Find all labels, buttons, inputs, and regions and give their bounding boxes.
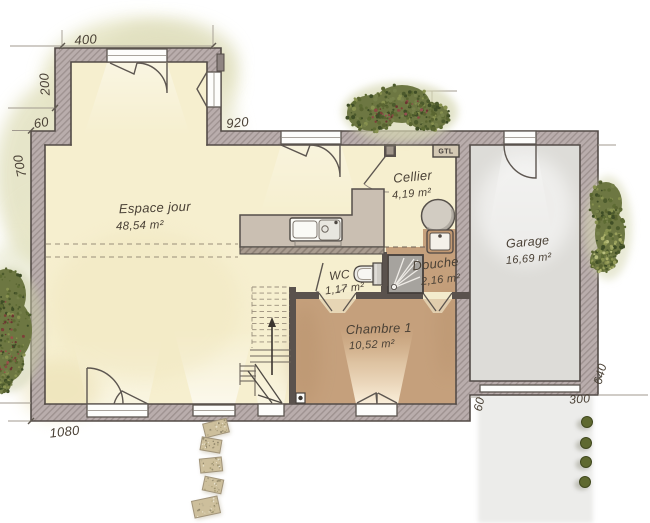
svg-text:920: 920 [226,114,251,131]
svg-text:Espace jour: Espace jour [119,199,192,217]
svg-text:48,54 m²: 48,54 m² [116,219,165,233]
svg-text:GTL: GTL [438,149,454,156]
svg-text:300: 300 [569,391,591,406]
svg-text:60: 60 [471,396,488,413]
svg-text:200: 200 [36,72,53,97]
svg-text:1080: 1080 [49,422,81,440]
svg-text:10,52 m²: 10,52 m² [349,338,395,352]
svg-text:WC: WC [328,267,350,283]
svg-text:60: 60 [32,114,50,131]
svg-text:Chambre 1: Chambre 1 [346,320,412,337]
svg-text:400: 400 [74,31,98,48]
